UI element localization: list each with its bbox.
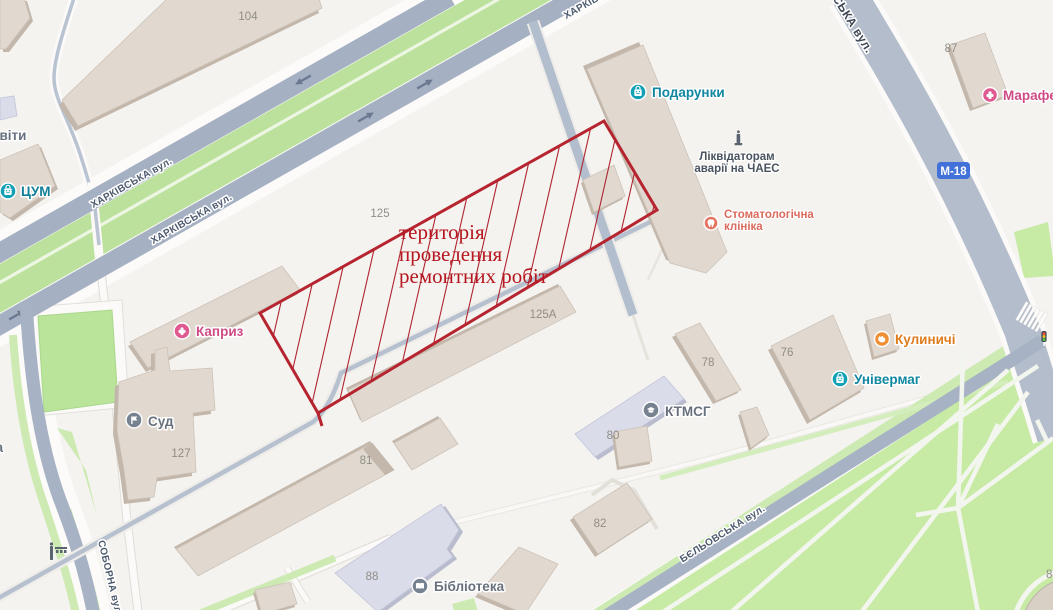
svg-text:Подарунки: Подарунки: [652, 85, 725, 100]
svg-text:104: 104: [238, 11, 258, 23]
svg-text:Стоматологічна: Стоматологічна: [724, 209, 814, 221]
svg-text:Бібліотека: Бібліотека: [434, 579, 505, 594]
svg-text:Ліквідаторам: Ліквідаторам: [699, 151, 774, 163]
svg-text:88: 88: [366, 571, 379, 583]
svg-text:78: 78: [702, 357, 715, 369]
svg-text:Суд: Суд: [148, 414, 174, 429]
svg-text:ремонтних робіт: ремонтних робіт: [399, 264, 548, 288]
svg-text:82: 82: [594, 518, 607, 530]
svg-text:га: га: [0, 440, 4, 455]
svg-text:Каприз: Каприз: [196, 324, 244, 339]
svg-text:81: 81: [360, 455, 373, 467]
svg-text:територія: територія: [399, 220, 485, 244]
svg-text:проведення: проведення: [399, 242, 503, 266]
svg-text:клініка: клініка: [724, 221, 763, 233]
svg-text:84: 84: [1046, 569, 1053, 581]
svg-text:Кулиничі: Кулиничі: [895, 332, 956, 347]
svg-text:125: 125: [370, 208, 389, 220]
svg-text:87: 87: [945, 43, 958, 55]
svg-text:Універмаг: Універмаг: [854, 372, 921, 387]
svg-text:Марафет: Марафет: [1003, 88, 1053, 103]
svg-text:світи: світи: [0, 128, 26, 143]
svg-text:125А: 125А: [530, 309, 557, 321]
svg-text:КТМСГ: КТМСГ: [665, 404, 711, 419]
svg-text:аварії на ЧАЕС: аварії на ЧАЕС: [694, 163, 779, 175]
svg-text:ЦУМ: ЦУМ: [21, 184, 51, 199]
svg-text:М-18: М-18: [940, 166, 967, 178]
svg-text:127: 127: [171, 448, 190, 460]
svg-text:80: 80: [607, 430, 620, 442]
svg-text:76: 76: [781, 347, 794, 359]
